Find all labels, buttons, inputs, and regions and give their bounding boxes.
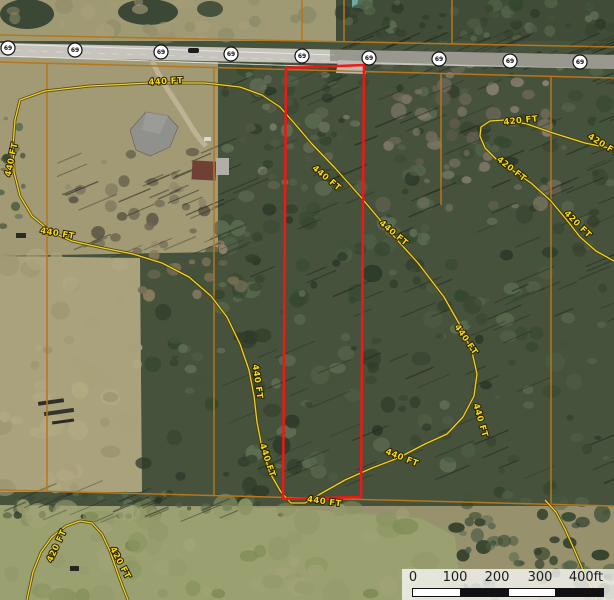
scale-bar: 0 100 200 300 400ft xyxy=(402,569,614,600)
aerial-imagery: 696969696969696969 440 FT440 FT440 FT440… xyxy=(0,0,614,600)
scale-label-400ft: 400ft xyxy=(569,570,603,585)
svg-text:69: 69 xyxy=(506,58,514,65)
svg-text:69: 69 xyxy=(4,45,12,52)
vehicle-dark xyxy=(16,233,26,238)
vehicle-white xyxy=(204,137,211,141)
route-69-shield-icon: 69 xyxy=(295,49,309,63)
route-69-shield-icon: 69 xyxy=(503,54,517,68)
route-69-shield-icon: 69 xyxy=(1,41,15,55)
scale-label-200: 200 xyxy=(485,570,510,585)
scale-bar-segments xyxy=(412,588,604,597)
route-69-shield-icon: 69 xyxy=(68,43,82,57)
route-69-shield-icon: 69 xyxy=(573,55,587,69)
svg-text:69: 69 xyxy=(71,47,79,54)
barn-roof xyxy=(191,160,216,180)
map-canvas[interactable]: 696969696969696969 440 FT440 FT440 FT440… xyxy=(0,0,614,600)
route-69-shield-icon: 69 xyxy=(432,52,446,66)
scale-label-0: 0 xyxy=(409,570,417,585)
svg-text:69: 69 xyxy=(576,59,584,66)
svg-text:69: 69 xyxy=(298,53,306,60)
route-69-shield-icon: 69 xyxy=(224,47,238,61)
svg-text:69: 69 xyxy=(365,55,373,62)
scale-label-100: 100 xyxy=(443,570,468,585)
scale-label-300: 300 xyxy=(528,570,553,585)
contour-label: 440 FT xyxy=(148,76,183,88)
vehicle-on-road xyxy=(188,48,199,53)
shed-roof xyxy=(216,158,229,175)
svg-text:69: 69 xyxy=(227,51,235,58)
route-69-shield-icon: 69 xyxy=(154,45,168,59)
svg-text:69: 69 xyxy=(435,56,443,63)
route-69-shield-icon: 69 xyxy=(362,51,376,65)
svg-text:69: 69 xyxy=(157,49,165,56)
